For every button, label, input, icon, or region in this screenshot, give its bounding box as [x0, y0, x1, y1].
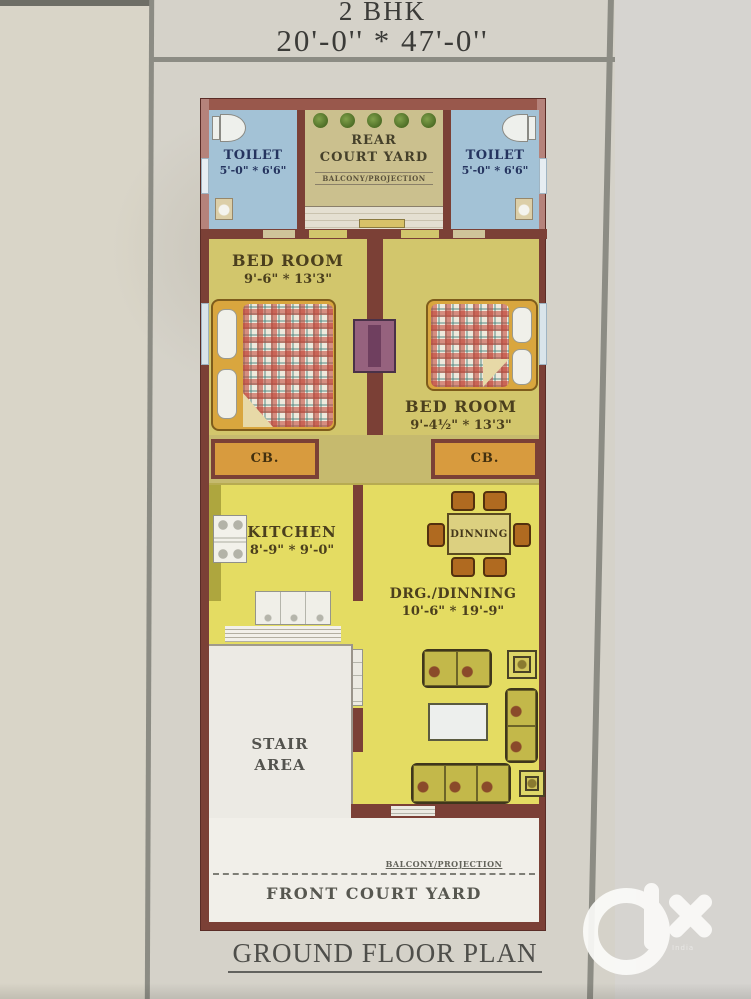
sofa-two-seater [505, 688, 538, 763]
floor-plan: TOILET 5'-0" * 6'6" TOILET 5'-0" * 6'6" [200, 98, 546, 931]
washbasin-icon [215, 198, 233, 220]
toilet-bowl-icon [500, 113, 536, 143]
stair-area-label: STAIR AREA [209, 734, 351, 776]
pillow [217, 369, 237, 419]
dining-chair [483, 491, 507, 511]
toilet-right-label: TOILET 5'-0" * 6'6" [451, 148, 539, 177]
sofa-two-seater [422, 649, 492, 688]
front-balcony-label: BALCONY/PROJECTION [369, 859, 519, 869]
window [391, 806, 435, 816]
room-toilet-left: TOILET 5'-0" * 6'6" [209, 110, 297, 229]
wall-top [201, 99, 545, 110]
plant-icon [367, 113, 382, 128]
kitchen-counter [225, 626, 341, 642]
pillow [217, 309, 237, 359]
side-table-inner [513, 656, 531, 673]
sink-icon [255, 591, 331, 625]
plant-icon [340, 113, 355, 128]
door-opening [263, 230, 295, 238]
wall [351, 804, 539, 818]
olx-caption: India [672, 944, 694, 952]
toilet-tank [212, 116, 220, 140]
blanket-fold [243, 393, 273, 427]
plan-footer-title: GROUND FLOOR PLAN [220, 938, 550, 969]
frame-line-right [587, 0, 614, 999]
dining-chair [451, 557, 475, 577]
toilet-bowl-icon [212, 113, 248, 143]
wall [297, 110, 305, 229]
bed-icon [426, 299, 538, 391]
wall-line [209, 483, 539, 485]
dining-table: DINNING [447, 513, 511, 555]
door-leaf [368, 325, 381, 367]
door-opening [401, 230, 439, 238]
olx-l-icon [644, 883, 659, 950]
dining-chair [427, 523, 445, 547]
pillow [512, 349, 532, 385]
room-front-courtyard: BALCONY/PROJECTION FRONT COURT YARD [209, 818, 539, 922]
window [539, 303, 547, 365]
washbasin-icon [515, 198, 533, 220]
plot-size: 20'-0'' * 47'-0'' [150, 23, 615, 59]
toilet-tank [528, 116, 536, 140]
toilet-bowl [502, 114, 528, 142]
side-table-inner [525, 776, 539, 791]
coffee-table [428, 703, 488, 741]
toilet-bowl [220, 114, 246, 142]
kitchen-label: KITCHEN 8'-9" * 9'-0" [227, 523, 357, 558]
olx-x-icon [667, 893, 713, 939]
wall [443, 110, 451, 229]
door-opening [453, 230, 485, 238]
plan-header: 2 BHK 20'-0'' * 47'-0'' [150, 0, 615, 59]
cupboard-row: CB. CB. [209, 435, 539, 483]
bed-icon [211, 299, 336, 431]
frame-line-left [145, 0, 154, 999]
side-table [519, 770, 545, 797]
cupboard-left: CB. [211, 439, 319, 479]
pillow [512, 307, 532, 343]
sofa-three-seater [411, 763, 511, 804]
window [539, 158, 547, 194]
room-rear-courtyard: REAR COURT YARD BALCONY/PROJECTION [305, 110, 443, 206]
dining-chair [451, 491, 475, 511]
rear-courtyard-label: REAR COURT YARD [305, 132, 443, 166]
sofa-cushions [507, 690, 536, 761]
window [201, 158, 209, 194]
dining-chair [483, 557, 507, 577]
window [201, 303, 209, 365]
floor-plan-photo: 2 BHK 20'-0'' * 47'-0'' TOILET 5'-0" * 6… [0, 0, 751, 999]
bedroom-right-label: BED ROOM 9'-4½" * 13'3" [383, 397, 539, 433]
plant-icon [421, 113, 436, 128]
front-courtyard-label: FRONT COURT YARD [209, 884, 539, 903]
bench [359, 219, 405, 228]
wall [353, 485, 363, 601]
plant-icon [394, 113, 409, 128]
drawing-dining-label: DRG./DINNING 10'-6" * 19'-9" [373, 586, 533, 619]
toilet-left-label: TOILET 5'-0" * 6'6" [209, 148, 297, 177]
door-opening [309, 230, 347, 238]
cupboard-right: CB. [431, 439, 539, 479]
olx-watermark: India [575, 880, 735, 960]
sofa-cushions [413, 765, 509, 802]
door-frame [353, 319, 396, 373]
rear-balcony-label: BALCONY/PROJECTION [315, 172, 433, 185]
blanket-fold [483, 359, 509, 387]
projection-dashed-line [213, 873, 535, 875]
photo-edge-line [0, 0, 150, 6]
wall [201, 229, 547, 239]
sofa-cushions [424, 651, 490, 686]
bedroom-left-label: BED ROOM 9'-6" * 13'3" [209, 251, 367, 287]
dining-chair [513, 523, 531, 547]
plant-icon [313, 113, 328, 128]
side-table [507, 650, 537, 679]
room-toilet-right: TOILET 5'-0" * 6'6" [451, 110, 539, 229]
